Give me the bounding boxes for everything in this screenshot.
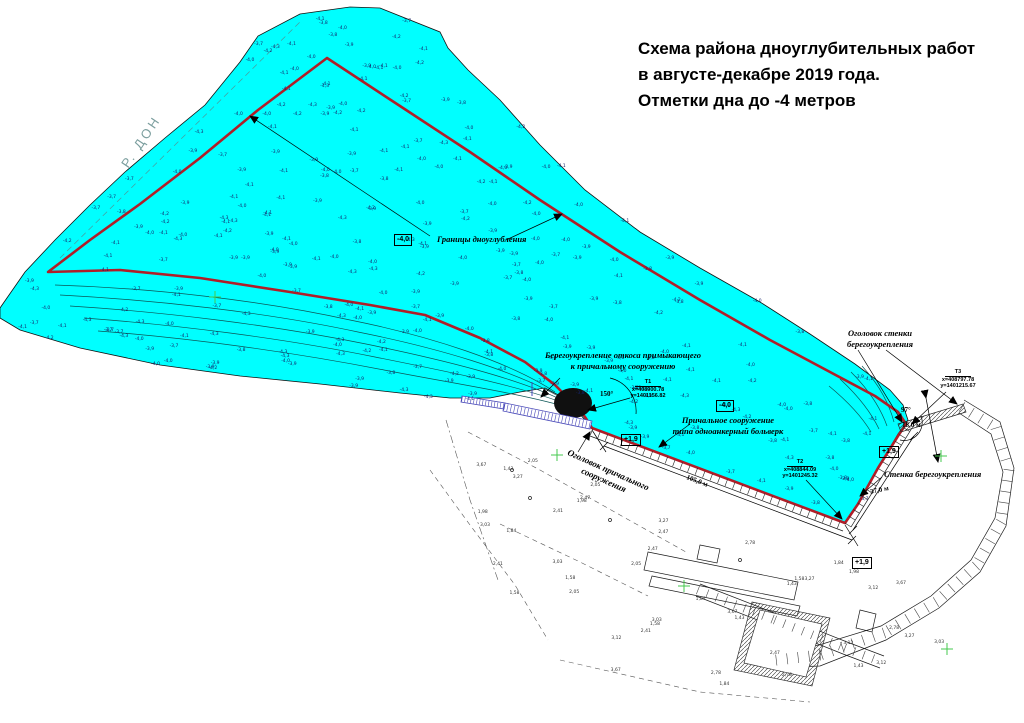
berth-label-line-1: Причальное сооружение: [658, 415, 798, 426]
wall-head-length-dimension: 18,0 м: [902, 421, 921, 429]
wall-head-label: Оголовок стенки берегоукрепления: [830, 328, 930, 349]
crest-mark-box-2: +1,9: [879, 446, 899, 458]
wall-angle-label: 97°: [901, 406, 911, 414]
berth-angle-label: 150°: [600, 390, 613, 398]
point-t3-name: Т3: [945, 369, 971, 377]
drawing-title: Схема района дноуглубительных работ в ав…: [638, 36, 975, 114]
shore-protection-slope-label: Берегоукрепление откоса примыкающего к п…: [538, 350, 708, 371]
berth-structure-label: Причальное сооружение типа одноанкерный …: [658, 415, 798, 436]
buildings: [644, 545, 876, 686]
wall-head-label-line-2: берегоукрепления: [830, 339, 930, 350]
point-t2: Т2 x=408844.09 y=1401245.32: [770, 459, 830, 480]
berth-label-line-2: типа одноанкерный больверк: [658, 426, 798, 437]
slope-label-line-2: к причальному сооружению: [538, 361, 708, 372]
point-t2-y: y=1401245.32: [770, 473, 830, 480]
berth-head-blob: [554, 388, 592, 418]
crest-mark-box-1: +1,9: [621, 434, 641, 446]
point-t1-name: Т1: [635, 379, 661, 387]
title-line-2: в августе-декабре 2019 года.: [638, 62, 975, 88]
dredging-scheme-drawing: -3,8-3,9-4,0-4,1-4,2-3,7-4,3-4,0-3,9-4,1…: [0, 0, 1024, 723]
point-t1-y: y=1401156.82: [618, 393, 678, 400]
point-t2-name: Т2: [787, 459, 813, 467]
depth-mark-box-2: -4,0: [716, 400, 734, 412]
title-line-1: Схема района дноуглубительных работ: [638, 36, 975, 62]
wall-head-label-line-1: Оголовок стенки: [830, 328, 930, 339]
slope-label-line-1: Берегоукрепление откоса примыкающего: [538, 350, 708, 361]
point-t1: Т1 x=408900.78 y=1401156.82: [618, 379, 678, 400]
point-t3: Т3 x=408797.78 y=1401215.67: [928, 369, 988, 390]
crest-mark-box-3: +1,9: [852, 557, 872, 569]
dredging-boundary-label: Границы дноуглубления: [437, 234, 526, 245]
point-t3-y: y=1401215.67: [928, 383, 988, 390]
wall-label: Стенка берегоукрепления: [884, 469, 981, 480]
depth-mark-box-1: -4,0: [394, 234, 412, 246]
title-line-3: Отметки дна до -4 метров: [638, 88, 975, 114]
